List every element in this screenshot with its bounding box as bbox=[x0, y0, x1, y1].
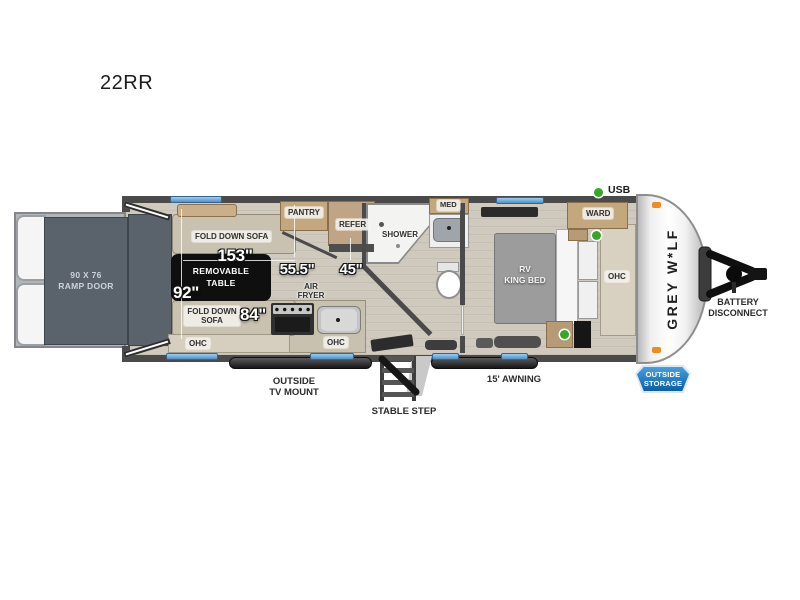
cargo-floor-mat bbox=[128, 214, 172, 346]
dim-45: 45" bbox=[332, 261, 370, 278]
window-top-rear bbox=[170, 196, 222, 203]
bedroom-door bbox=[461, 305, 464, 335]
page-title: 22RR bbox=[100, 72, 153, 95]
battery-disconnect-label: BATTERY DISCONNECT bbox=[700, 297, 776, 319]
battery-l1: BATTERY bbox=[700, 297, 776, 308]
ohc-rear-label: OHC bbox=[186, 338, 210, 349]
ohc-bedroom-label: OHC bbox=[605, 271, 629, 282]
marker-light-icon-bottom bbox=[652, 347, 661, 353]
storage-l2: STORAGE bbox=[644, 379, 682, 388]
stove-front bbox=[275, 317, 310, 332]
outside-tv-mount-label: OUTSIDE TV MOUNT bbox=[254, 376, 334, 399]
usb-legend-label: USB bbox=[608, 184, 630, 196]
sink-faucet bbox=[336, 318, 340, 322]
dim-84: 84" bbox=[228, 305, 278, 325]
air-fryer-l1: AIR bbox=[292, 282, 330, 291]
bath-faucet bbox=[447, 226, 451, 230]
wardrobe-label: WARD bbox=[583, 208, 613, 219]
toilet bbox=[436, 270, 462, 299]
stable-step-label: STABLE STEP bbox=[357, 406, 451, 417]
window-top-bedroom bbox=[496, 197, 544, 204]
bedroom-black-cabinet bbox=[574, 321, 591, 348]
window-bottom-bed bbox=[501, 353, 528, 360]
dim-555: 55.5" bbox=[274, 261, 320, 278]
awning-label: 15' AWNING bbox=[468, 374, 560, 385]
fold-down-sofa-top-label: FOLD DOWN SOFA bbox=[192, 231, 271, 242]
kitchen-sink bbox=[317, 306, 361, 334]
bed-label-l1: RV bbox=[494, 264, 556, 275]
window-bottom-rear bbox=[166, 353, 218, 360]
ramp-flap-bottom bbox=[16, 283, 46, 346]
refrigerator-base bbox=[329, 244, 374, 252]
storage-l1: OUTSIDE bbox=[644, 370, 682, 379]
pantry-label: PANTRY bbox=[285, 207, 323, 218]
window-bottom-kitchen bbox=[310, 353, 354, 360]
shower-label: SHOWER bbox=[372, 230, 428, 239]
ramp-door-text: RAMP DOOR bbox=[58, 281, 113, 292]
shower-head-icon bbox=[379, 222, 384, 227]
air-fryer-label: AIR FRYER bbox=[292, 282, 330, 300]
bedroom-tv-shelf bbox=[481, 207, 538, 217]
bed-label: RV KING BED bbox=[494, 264, 556, 286]
bedside-shelf bbox=[568, 229, 588, 241]
air-fryer-l2: FRYER bbox=[292, 291, 330, 300]
battery-l2: DISCONNECT bbox=[700, 308, 776, 319]
refrigerator-label: REFER bbox=[336, 219, 369, 230]
dimline-45 bbox=[350, 238, 351, 260]
dimline-92 bbox=[181, 209, 182, 339]
bed-drawer-top bbox=[578, 241, 598, 280]
stable-step-graphic bbox=[372, 352, 434, 404]
outside-storage-badge: OUTSIDE STORAGE bbox=[635, 365, 691, 393]
bedroom-pillow bbox=[476, 338, 493, 348]
bedroom-wall bbox=[460, 203, 465, 305]
ramp-door-size: 90 X 76 bbox=[58, 270, 113, 281]
dim-153: 153" bbox=[205, 246, 265, 266]
bedroom-bench bbox=[494, 336, 541, 348]
marker-light-icon-top bbox=[652, 202, 661, 208]
stove-burner-strip bbox=[273, 305, 312, 314]
dim-92: 92" bbox=[164, 283, 208, 303]
tv-l2: TV MOUNT bbox=[254, 387, 334, 398]
entry-door-glass bbox=[432, 353, 459, 360]
outside-storage-badge-inner: OUTSIDE STORAGE bbox=[637, 367, 689, 391]
med-label: MED bbox=[437, 200, 460, 211]
shower-drain-icon bbox=[396, 244, 400, 248]
brand-logo: GREY W*LF bbox=[664, 228, 680, 330]
bedroom-wall-stub bbox=[460, 336, 465, 353]
bed-label-l2: KING BED bbox=[494, 275, 556, 286]
bath-wall-left bbox=[362, 203, 366, 265]
bed-drawer-bottom bbox=[578, 281, 598, 319]
outside-storage-label: OUTSIDE STORAGE bbox=[644, 370, 682, 388]
sofa-top-bolster bbox=[177, 204, 237, 217]
removable-table-l1: REMOVABLE bbox=[193, 266, 249, 277]
ramp-door-panel: 90 X 76 RAMP DOOR bbox=[44, 217, 128, 345]
bed-platform bbox=[556, 229, 578, 325]
usb-indicator-dot-top bbox=[592, 231, 601, 240]
ramp-flap-top bbox=[16, 215, 46, 281]
usb-legend-dot bbox=[594, 188, 603, 197]
ohc-kitchen-label: OHC bbox=[324, 337, 348, 348]
tv-l1: OUTSIDE bbox=[254, 376, 334, 387]
ramp-door-label: 90 X 76 RAMP DOOR bbox=[58, 270, 113, 292]
floorplan-canvas: 22RR 90 X 76 RAMP DOOR FOLD DOWN SOFA 15… bbox=[0, 0, 800, 600]
usb-indicator-dot-bottom bbox=[560, 330, 569, 339]
entry-step-mat bbox=[425, 340, 457, 350]
